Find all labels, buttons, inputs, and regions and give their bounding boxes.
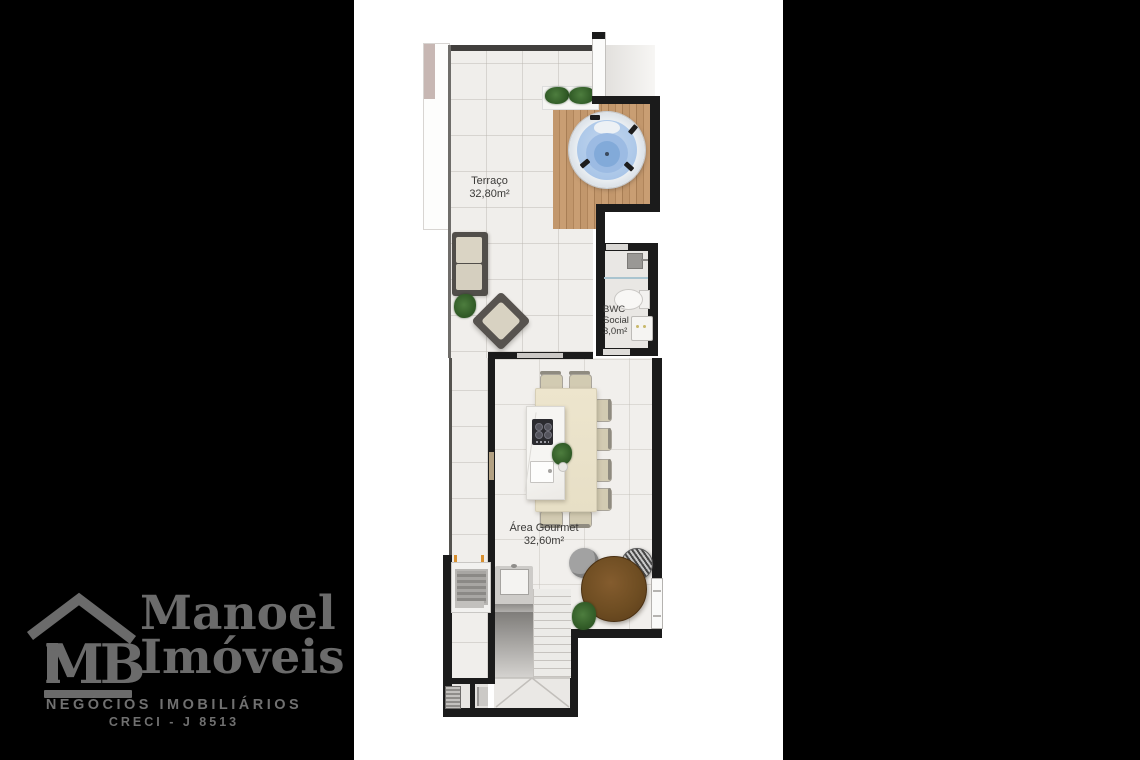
terrace-area: 32,80m² [452, 188, 527, 201]
dining-chair-back [608, 428, 611, 449]
hot-tub-clamp-icon [590, 115, 600, 120]
dining-chair-back [608, 399, 611, 420]
sofa-cushion [456, 264, 482, 290]
bbq-handle-dot [481, 555, 484, 562]
stairs-right-wall [570, 629, 578, 717]
planter-plant-icon [545, 87, 569, 104]
gourmet-top-door [517, 353, 563, 358]
logo-monogram: MB [44, 636, 141, 692]
bbq-handle-dot [454, 555, 457, 562]
gourmet-name: Área Gourmet [500, 522, 588, 535]
dining-chair-back [608, 488, 611, 509]
logo-license: CRECI - J 8513 [38, 715, 310, 729]
counter-sink-icon [500, 569, 529, 595]
bottom-outer-wall [443, 708, 578, 717]
glass-door-leaf [653, 615, 661, 617]
neighbor-wall-strip [424, 44, 435, 99]
terrace-name: Terraço [452, 175, 527, 188]
corridor-right-wall [488, 352, 495, 684]
upper-roof-slab [605, 45, 655, 97]
wall-cap [592, 32, 605, 39]
hot-tub-drain [605, 152, 609, 156]
stairs-treads [533, 589, 571, 678]
sink-tap-dot [643, 325, 646, 328]
bbq-grill-icon [455, 569, 488, 605]
bwc-label: BWC Social 3,0m² [603, 305, 637, 338]
terrace-top-parapet [448, 45, 597, 51]
logo-name-line2: Imóveis [140, 636, 345, 680]
burner-dot [535, 423, 543, 431]
terrace-left-parapet [448, 45, 451, 358]
deck-bottom-wall [596, 204, 660, 212]
sofa-cushion [456, 237, 482, 263]
dining-chair-back [608, 459, 611, 480]
right-wall-upper [650, 96, 660, 212]
logo-tagline: NEGÓCIOS IMOBILIÁRIOS [38, 697, 310, 713]
shaft-icon [477, 687, 488, 706]
glass-door-icon [651, 578, 663, 629]
stairs-ramp [495, 612, 533, 678]
utility-unit-icon [445, 686, 461, 709]
brand-logo: MB Manoel Imóveis NEGÓCIOS IMOBILIÁRIOS … [0, 560, 354, 760]
table-plant-pot [558, 462, 568, 472]
burner-dot [535, 431, 543, 439]
shower-arm [641, 259, 648, 261]
stairs-winder [495, 677, 570, 708]
upper-wall-strip [592, 32, 606, 100]
corridor-door [489, 452, 494, 480]
gourmet-right-wall [652, 358, 662, 580]
floor-plant-icon [572, 602, 596, 630]
burner-dot [544, 431, 552, 439]
left-wall-mid [449, 358, 452, 558]
potted-plant-icon [454, 294, 476, 318]
bwc-top-door [606, 244, 628, 250]
shower-glass [604, 277, 648, 279]
floor-plan-image: Terraço 32,80m² BWC Social 3,0m² Área Go… [0, 0, 1140, 760]
bwc-area: 3,0m² [603, 327, 637, 338]
gourmet-label: Área Gourmet 32,60m² [500, 522, 588, 547]
wood-deck-extension [553, 212, 597, 229]
bwc-bottom-door [603, 349, 630, 355]
cooktop-controls [536, 441, 549, 443]
bwc-left-wall [596, 243, 605, 356]
terrace-label: Terraço 32,80m² [452, 175, 527, 200]
bbq-shadow [455, 601, 484, 608]
glass-door-leaf [653, 590, 661, 592]
side-corridor-floor [452, 358, 488, 678]
counter-faucet-icon [511, 564, 517, 568]
shower-icon [627, 253, 643, 269]
gourmet-area: 32,60m² [500, 535, 588, 548]
burner-dot [544, 423, 552, 431]
island-faucet-dot [548, 469, 552, 473]
room-bottom-wall [570, 629, 662, 638]
